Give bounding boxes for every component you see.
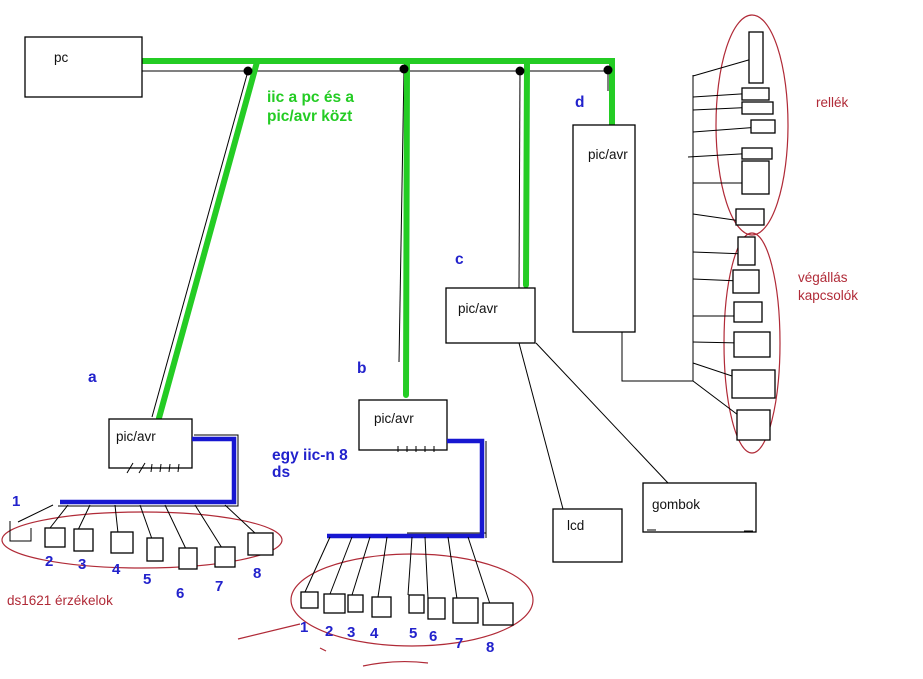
bus-note-line1: iic a pc és a — [267, 89, 354, 106]
limit-switch-box — [734, 302, 762, 322]
node-a-letter: a — [88, 369, 97, 386]
stray-red-stroke — [320, 648, 326, 651]
c-to-lcd-line — [519, 343, 563, 509]
limit-switch-box — [737, 410, 770, 440]
sensor-b-number: 7 — [455, 635, 463, 652]
relays-caption: rellék — [816, 95, 849, 110]
limit-switch-box — [734, 332, 770, 357]
stray-red-stroke — [363, 662, 428, 666]
sensor-b-number: 3 — [347, 624, 355, 641]
wiring-diagram-canvas: pc pic/avr rellék végállás kapcsolók pic… — [0, 0, 923, 679]
relay-box — [742, 88, 769, 100]
sensor-a-fan-line — [225, 505, 256, 534]
buttons-label: gombok — [652, 497, 700, 512]
stray-red-stroke — [238, 624, 300, 639]
iic-drop-c — [526, 62, 527, 285]
limit-switches-caption-line2: kapcsolók — [798, 288, 858, 303]
node-d-output-step — [622, 332, 693, 381]
lcd-label: lcd — [567, 518, 584, 533]
bus-note-line2: pic/avr közt — [267, 108, 352, 125]
bus-junction-dot — [244, 67, 253, 76]
limit-switch-box — [738, 237, 755, 265]
sensor-b-box — [348, 595, 363, 612]
sensor-a-number: 8 — [253, 565, 261, 582]
relay-fan-line — [693, 127, 760, 132]
node-b-letter: b — [357, 360, 366, 377]
diagram-page: pc pic/avr rellék végállás kapcsolók pic… — [0, 0, 923, 679]
limit-switch-box — [732, 370, 775, 398]
branch-line-a — [152, 71, 248, 417]
sensor-b-box — [453, 598, 478, 623]
sensors-b-note-line2: ds — [272, 464, 290, 481]
c-to-buttons-line — [536, 343, 668, 483]
sensor-b-fan-line — [425, 537, 428, 598]
relay-box — [751, 120, 775, 133]
iic-drop-b — [406, 62, 407, 395]
sensor-a-fan-line — [165, 505, 186, 549]
bus-junction-dot — [604, 66, 613, 75]
node-c-chip-label: pic/avr — [458, 301, 498, 316]
sensor-b-box — [372, 597, 391, 617]
lcd-box — [553, 509, 622, 562]
wire-b-blue — [327, 441, 482, 536]
sensor-a-box — [248, 533, 273, 555]
sensor-b-fan-line — [408, 537, 412, 595]
sensor-a-number: 6 — [176, 585, 184, 602]
node-b-chip-label: pic/avr — [374, 411, 414, 426]
relay-box — [736, 209, 764, 225]
sensor-a-box — [74, 529, 93, 551]
pc-label: pc — [54, 50, 69, 65]
sensor-b-fan-line — [352, 537, 370, 595]
sensor-b-fan-line — [448, 537, 457, 599]
sensor-b-fan-line — [378, 537, 387, 597]
iic-drop-a — [159, 62, 257, 418]
sensors-a-group-ellipse — [2, 512, 282, 568]
sensor-b-fan-line — [305, 537, 330, 592]
sensor-b-number: 2 — [325, 623, 333, 640]
sensor-a-number: 3 — [78, 556, 86, 573]
sensor-a-number: 1 — [12, 493, 20, 510]
limit-switches-caption-line1: végállás — [798, 270, 848, 285]
bus-junction-dot — [516, 67, 525, 76]
sensor-b-box — [301, 592, 318, 608]
sensor-b-number: 8 — [486, 639, 494, 656]
node-d-letter: d — [575, 94, 584, 111]
relay-box — [742, 102, 773, 114]
sensor-a-fan-line — [115, 505, 118, 533]
sensor-b-number: 1 — [300, 619, 308, 636]
sensor-b-box — [483, 603, 513, 625]
sensor-b-number: 5 — [409, 625, 417, 642]
sensor-a-box — [147, 538, 163, 561]
limit-switch-box — [733, 270, 759, 293]
sensor-a-box — [45, 528, 65, 547]
sensor-a-fan-line — [78, 505, 90, 530]
node-c-letter: c — [455, 251, 464, 268]
sensor-a-number: 5 — [143, 571, 151, 588]
node-a-chip-label: pic/avr — [116, 429, 156, 444]
bus-junction-dot — [400, 65, 409, 74]
sensor-a-fan-line — [140, 505, 152, 539]
sensor-b-number: 6 — [429, 628, 437, 645]
sensors-b-note-line1: egy iic-n 8 — [272, 447, 348, 464]
node-d-chip-label: pic/avr — [588, 147, 628, 162]
sensor-a-box — [215, 547, 235, 567]
sensor-a-number: 2 — [45, 553, 53, 570]
sensor-b-fan-line — [468, 537, 490, 604]
sensor-b-box — [324, 594, 345, 613]
sensor-a-number: 4 — [112, 561, 121, 578]
sensor-a-box — [111, 532, 133, 553]
relay-box — [742, 161, 769, 194]
branch-line-c — [519, 71, 520, 288]
relay-box — [742, 148, 772, 159]
sensor-a-fan-line — [195, 505, 222, 548]
pc-box — [25, 37, 142, 97]
sensors-a-caption: ds1621 érzékelok — [7, 593, 113, 608]
sensor-a-box — [179, 548, 197, 569]
sensor-b-box — [409, 595, 424, 613]
relay-box — [749, 32, 763, 83]
sensor-b-box — [428, 598, 445, 619]
sensor-a-number: 7 — [215, 578, 223, 595]
sensor-b-number: 4 — [370, 625, 379, 642]
